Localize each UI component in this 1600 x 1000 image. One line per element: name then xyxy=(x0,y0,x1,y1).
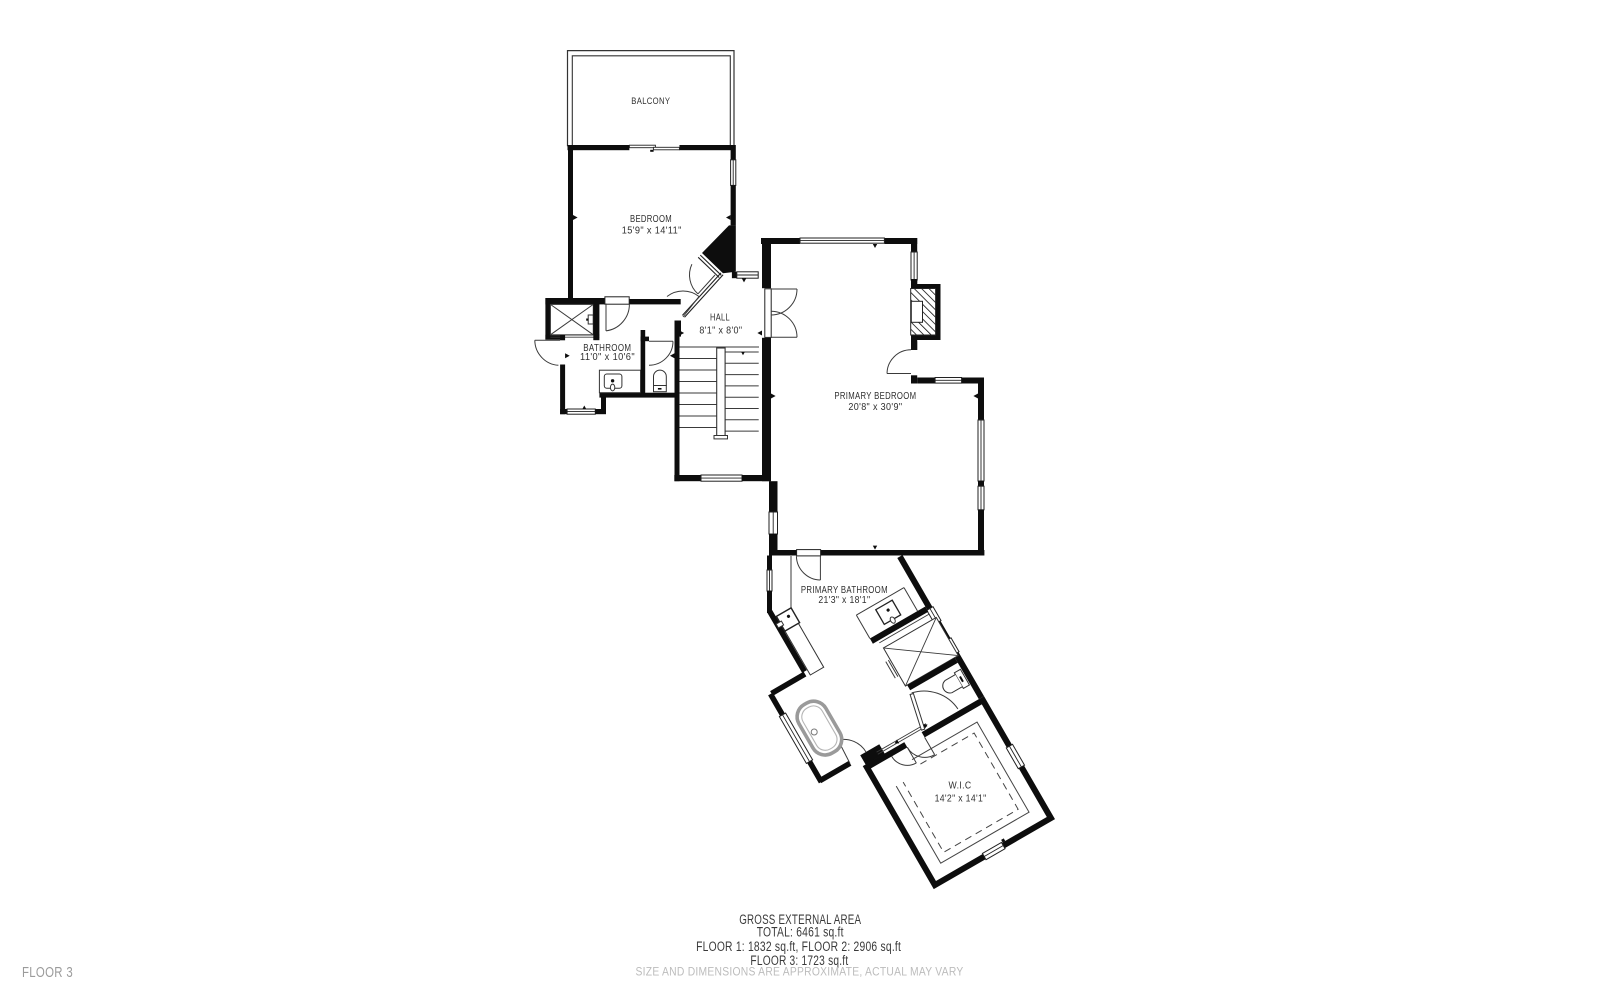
svg-text:FLOOR 3: FLOOR 3 xyxy=(22,964,73,981)
svg-text:15'9" x 14'11": 15'9" x 14'11" xyxy=(622,226,682,237)
svg-text:W.I.C: W.I.C xyxy=(949,780,972,791)
svg-text:PRIMARY BEDROOM: PRIMARY BEDROOM xyxy=(834,391,916,402)
svg-text:BEDROOM: BEDROOM xyxy=(630,214,672,225)
svg-text:TOTAL: 6461 sq.ft: TOTAL: 6461 sq.ft xyxy=(757,925,844,940)
svg-text:14'2" x 14'1": 14'2" x 14'1" xyxy=(935,793,987,804)
svg-text:FLOOR 1: 1832 sq.ft, FLOOR 2:: FLOOR 1: 1832 sq.ft, FLOOR 2: 2906 sq.ft xyxy=(696,939,901,954)
svg-text:BALCONY: BALCONY xyxy=(631,96,670,107)
svg-text:21'3" x 18'1": 21'3" x 18'1" xyxy=(818,595,870,606)
svg-text:SIZE AND DIMENSIONS ARE APPROX: SIZE AND DIMENSIONS ARE APPROXIMATE, ACT… xyxy=(636,965,964,979)
svg-text:20'8" x 30'9": 20'8" x 30'9" xyxy=(848,402,902,413)
svg-text:HALL: HALL xyxy=(710,313,730,324)
svg-text:8'1" x 8'0": 8'1" x 8'0" xyxy=(699,326,742,337)
svg-text:11'0" x 10'6": 11'0" x 10'6" xyxy=(580,352,635,363)
